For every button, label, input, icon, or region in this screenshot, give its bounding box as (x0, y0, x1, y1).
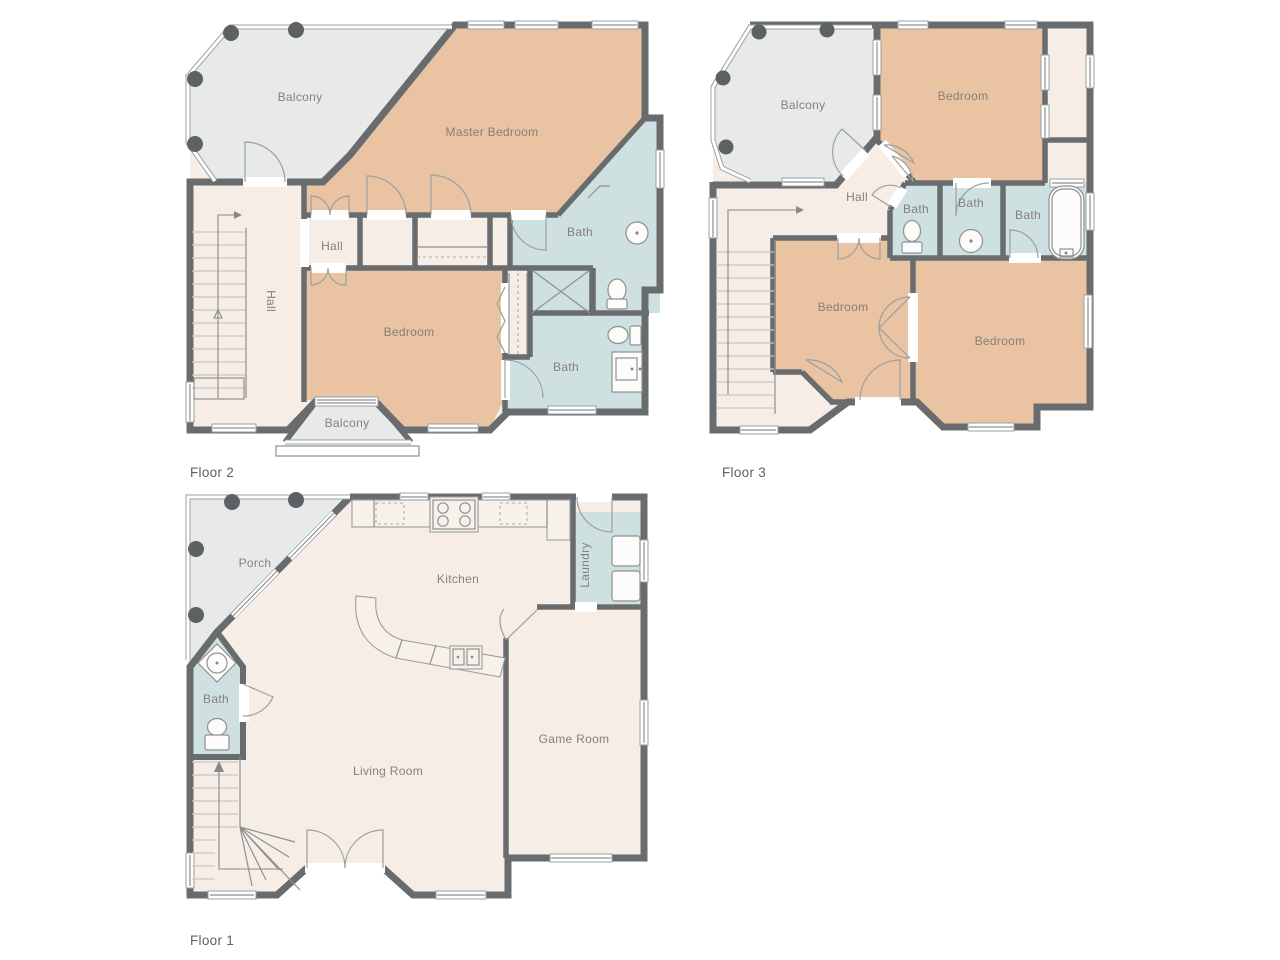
column-icon (288, 492, 304, 508)
column-icon (188, 607, 204, 623)
room-label-bath-top: Bath (567, 225, 593, 239)
column-icon (820, 23, 835, 38)
toilet-tank (607, 299, 627, 309)
dryer-fixture (612, 571, 640, 601)
faucet-dot (1065, 252, 1068, 255)
room-label-bath: Bath (203, 692, 229, 706)
floor2-plan: Balcony Master Bedroom Bath Hall Hall Be… (186, 21, 664, 480)
room-label-kitchen: Kitchen (437, 572, 479, 586)
sink-drain (969, 239, 972, 242)
floor2-balcony-small-rim (276, 446, 419, 456)
toilet-fixture (208, 719, 227, 736)
floorplan-canvas: Balcony Master Bedroom Bath Hall Hall Be… (0, 0, 1280, 960)
faucet-dot (457, 656, 460, 659)
column-icon (188, 541, 204, 557)
toilet-fixture (904, 221, 921, 242)
room-label-bedroom-right: Bedroom (975, 334, 1026, 348)
room-label-bath-mid: Bath (958, 196, 984, 210)
toilet-fixture (608, 279, 626, 301)
column-icon (187, 71, 203, 87)
room-label-hall: Hall (264, 290, 278, 312)
room-label-hall-small: Hall (321, 239, 343, 253)
column-icon (288, 22, 304, 38)
room-label-bath-right: Bath (1015, 208, 1041, 222)
room-label-bath-left: Bath (903, 202, 929, 216)
column-icon (223, 25, 239, 41)
counter-right-block (547, 500, 570, 540)
floor2-label: Floor 2 (190, 465, 234, 480)
column-icon (224, 494, 240, 510)
washer-fixture (612, 536, 640, 566)
stove-fixture (430, 497, 478, 532)
room-label-balcony: Balcony (278, 90, 323, 104)
floorplan-page: Balcony Master Bedroom Bath Hall Hall Be… (0, 0, 1280, 960)
column-icon (719, 140, 734, 155)
column-icon (752, 25, 767, 40)
room-label-master-bedroom: Master Bedroom (446, 125, 539, 139)
floor3-label: Floor 3 (722, 465, 766, 480)
room-label-bedroom: Bedroom (384, 325, 435, 339)
room-label-laundry: Laundry (578, 542, 592, 587)
toilet-tank (630, 326, 641, 345)
floor3-bedroom-top-room (877, 27, 1045, 183)
room-label-porch: Porch (239, 556, 272, 570)
room-label-hall: Hall (846, 190, 868, 204)
floor3-plan: Balcony Bedroom Hall Bath Bath Bath Bedr… (709, 21, 1094, 480)
room-label-bedroom-left: Bedroom (818, 300, 869, 314)
room-label-bedroom-top: Bedroom (938, 89, 989, 103)
sink-drain (635, 231, 638, 234)
floor1-plan: Porch Kitchen Laundry Bath Living Room G… (186, 492, 648, 948)
toilet-tank (902, 242, 922, 253)
sink-drain (216, 662, 219, 665)
room-label-game-room: Game Room (539, 732, 610, 746)
column-icon (187, 136, 203, 152)
floor1-label: Floor 1 (190, 933, 234, 948)
room-label-bath-bottom: Bath (553, 360, 579, 374)
toilet-tank (205, 735, 229, 750)
room-label-balcony: Balcony (781, 98, 826, 112)
column-icon (716, 71, 731, 86)
faucet-dot (639, 368, 642, 371)
bathtub-fixture (1049, 186, 1084, 259)
faucet-dot (631, 368, 634, 371)
toilet-fixture (608, 327, 628, 344)
room-label-living-room: Living Room (353, 764, 423, 778)
faucet-dot (471, 656, 474, 659)
room-label-balcony-small: Balcony (325, 416, 370, 430)
